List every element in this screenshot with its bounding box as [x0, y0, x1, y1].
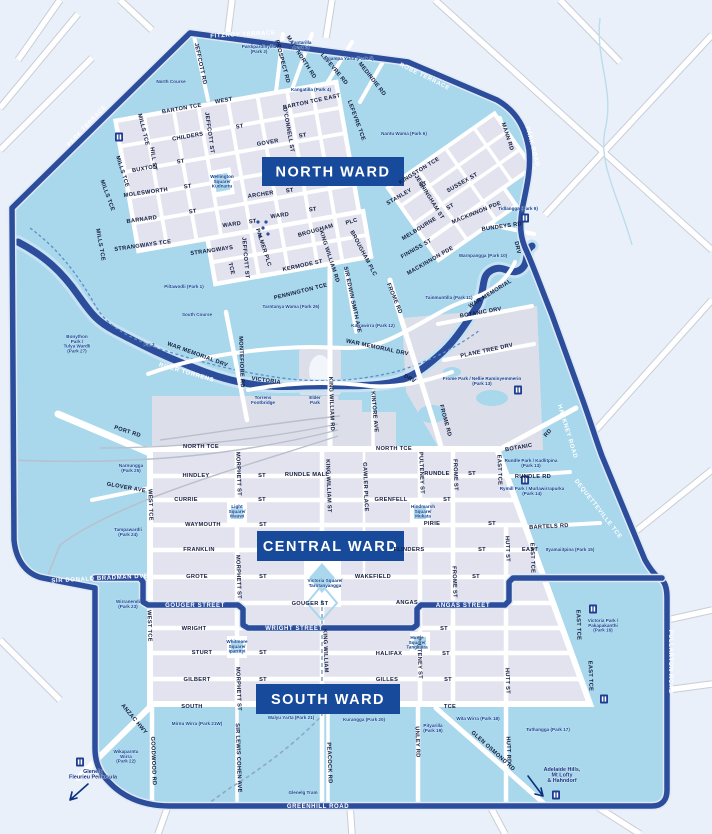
ward-banner-label-central: CENTRAL WARD [263, 539, 398, 555]
park-label: Kantarilla(Park 3) [291, 40, 312, 50]
street-label: FROME ST [451, 459, 458, 491]
ward-banner-label-north: NORTH WARD [276, 165, 391, 181]
park-label: Ngampa Yarta (Park 5) [325, 56, 374, 61]
street-label: ST [472, 574, 480, 580]
map-canvas: NORTH WARDCENTRAL WARDSOUTH WARD FITZROY… [0, 0, 712, 834]
street-label: RUNDLE [424, 471, 450, 477]
boundary-road-label: FULLARTON ROAD [667, 630, 673, 694]
park-label: ElderPark [309, 395, 321, 405]
street-label: ST [259, 650, 267, 656]
street-label: ST [259, 574, 267, 580]
street-label: GROTE [186, 574, 208, 580]
street-label: ST [249, 218, 258, 225]
park-label: South Course [182, 312, 213, 317]
street-label: ST [309, 206, 318, 213]
park-label: North Course [156, 79, 186, 84]
park-label: Tuthangga (Park 17) [526, 727, 570, 732]
street-label: FRANKLIN [183, 547, 214, 553]
street-label: WEST TCE [146, 489, 153, 521]
street-label: HUTT ST [504, 668, 511, 695]
street-label: EAST TCE [528, 543, 535, 574]
street-label: RUNDLE MALL [285, 472, 330, 478]
park-label: Victoria Square/Tarntanyangga [308, 578, 344, 588]
park-label: WellingtonSquare/Kudnartu [210, 174, 234, 189]
street-label: ST [258, 497, 266, 503]
street-label: ST [286, 187, 295, 194]
street-label: UNLEY RD [413, 726, 420, 758]
street-label: WEST TCE [145, 610, 152, 642]
street-label: ANGAS [396, 600, 418, 606]
park-label: Tampawardli(Park 24) [114, 527, 142, 537]
street-label: ST [443, 497, 451, 503]
park-label: Pityarilla(Park 19) [423, 723, 443, 733]
street-label: EAST TCE [495, 455, 502, 486]
street-label: RUNDLE RD [515, 474, 551, 480]
street-label: ST [184, 183, 193, 190]
park-label: BonythonPark /Tulya Wardli(Park 27) [64, 334, 91, 353]
street-label: HALIFAX [376, 651, 402, 657]
street-label: ST [488, 521, 496, 527]
ward-banner-label-south: SOUTH WARD [271, 692, 385, 708]
festival-block [336, 400, 362, 446]
landmark-icon [514, 386, 522, 395]
park-label: Narnungga(Park 25) [119, 463, 144, 473]
park-label: Walyu Yarta (Park 21) [268, 715, 315, 720]
landmark-icon [552, 791, 560, 800]
landmark-icon [115, 133, 123, 142]
park-label: Wirranendi(Park 23) [116, 599, 140, 609]
street-label: TCE [444, 704, 456, 710]
street-label: GOUGER ST [292, 601, 329, 607]
landmark-icon [589, 605, 597, 614]
park-label: Tidlangga (Park 9) [498, 206, 538, 211]
street-label: NORTH TCE [183, 444, 219, 450]
street-label: STURT [192, 650, 213, 656]
park-label: Mirnu Wirra (Park 21W) [172, 721, 223, 726]
street-label: FROME ST [450, 566, 457, 598]
street-label: WRIGHT [182, 626, 207, 632]
landmark-icon [600, 695, 608, 704]
street-label: ST [442, 651, 450, 657]
park-label: Tainmuntilla (Park 11) [425, 295, 473, 300]
street-label: ST [259, 522, 267, 528]
park-label: Ityamaiitpina (Park 15) [546, 547, 595, 552]
street-label: GILBERT [183, 677, 210, 683]
street-label: ST [189, 208, 198, 215]
landmark-icon [521, 214, 529, 223]
park-label: Nantu Wama (Park 6) [381, 131, 427, 136]
park-label: Kangatilla (Park 4) [291, 87, 332, 92]
street-label: ST [259, 677, 267, 683]
street-label: FLINDERS [394, 547, 425, 553]
street-label: ST [468, 471, 476, 477]
park-label: Warnpangga (Park 10) [459, 253, 508, 258]
street-label: ST [258, 473, 266, 479]
street-label: EAST TCE [574, 610, 581, 641]
park-label: Wita Wirra (Park 18) [456, 716, 500, 721]
park-label: WhitmoreSquare/Iparrityi [226, 639, 248, 654]
street-label: GRENFELL [374, 497, 407, 503]
adelaide-wards-map: NORTH WARDCENTRAL WARDSOUTH WARD FITZROY… [0, 0, 712, 834]
park-label: Par 3 [143, 342, 155, 347]
boundary-road-label: WRIGHT STREET [265, 626, 322, 632]
street-label: SOUTH [181, 704, 202, 710]
street-label: ST [440, 626, 448, 632]
street-label: PIRIE [424, 521, 440, 527]
street-label: NORTH TCE [376, 446, 412, 452]
park-label: Tarntanya Wama (Park 26) [263, 304, 320, 309]
street-label: ST [444, 677, 452, 683]
street-label: EAST TCE [586, 661, 593, 692]
boundary-road-label: ANGAS STREET [436, 603, 490, 609]
street-label: GILLES [376, 677, 398, 683]
boundary-road-label: GOUGER STREET [165, 603, 225, 609]
park-label: Kurangga (Park 20) [343, 717, 386, 722]
street-label: WAYMOUTH [185, 522, 221, 528]
park-label: Karrawirra (Park 12) [351, 323, 395, 328]
boundary-road-label: GREENHILL ROAD [287, 804, 349, 810]
street-label: HINDLEY [182, 473, 209, 479]
street-label: HUTT ST [504, 536, 511, 563]
park-label: Piltawodli (Park 1) [164, 284, 204, 289]
park-label: Glenelg Tram [288, 790, 317, 795]
landmark-icon [76, 758, 84, 767]
street-label: CURRIE [174, 497, 198, 503]
street-label: ST [478, 547, 486, 553]
street-label: WAKEFIELD [355, 574, 391, 580]
